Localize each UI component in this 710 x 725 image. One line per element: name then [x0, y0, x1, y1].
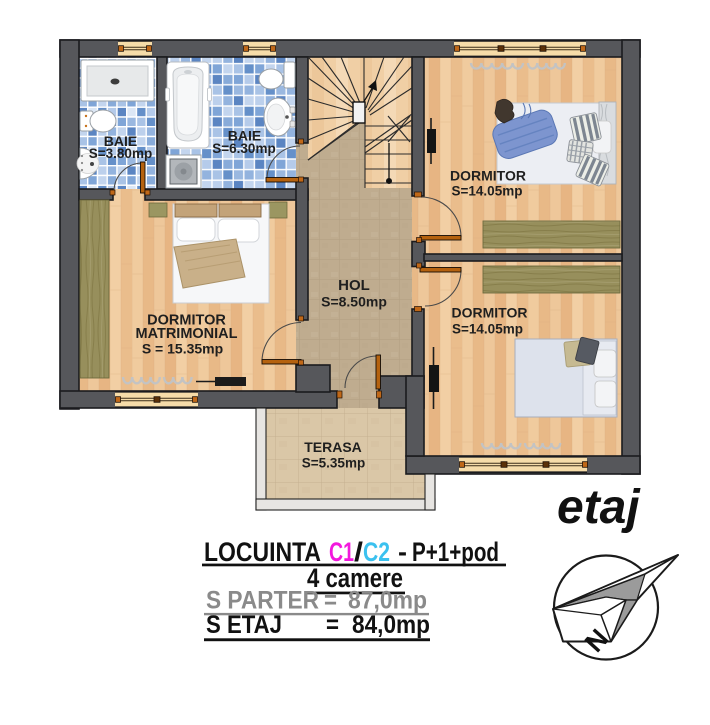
svg-text:etaj: etaj [557, 481, 641, 534]
svg-text:=: = [326, 611, 339, 639]
svg-text:S ETAJ: S ETAJ [206, 611, 282, 639]
svg-text:S=5.35mp: S=5.35mp [302, 456, 365, 471]
svg-text:HOL: HOL [338, 277, 370, 294]
svg-text:TERASA: TERASA [304, 439, 362, 455]
svg-text:S = 15.35mp: S = 15.35mp [142, 341, 223, 357]
svg-text:DORMITOR: DORMITOR [450, 168, 526, 184]
svg-text:DORMITOR: DORMITOR [452, 305, 528, 321]
svg-text:S=14.05mp: S=14.05mp [452, 322, 523, 337]
svg-text:S=14.05mp: S=14.05mp [452, 184, 523, 199]
svg-text:S=8.50mp: S=8.50mp [321, 294, 387, 310]
svg-text:S=3.80mp: S=3.80mp [89, 146, 152, 161]
svg-text:P+1+pod: P+1+pod [412, 537, 499, 567]
svg-text:84,0mp: 84,0mp [352, 611, 430, 639]
svg-text:S=6.30mp: S=6.30mp [212, 141, 275, 156]
svg-text:LOCUINTA: LOCUINTA [204, 537, 321, 567]
